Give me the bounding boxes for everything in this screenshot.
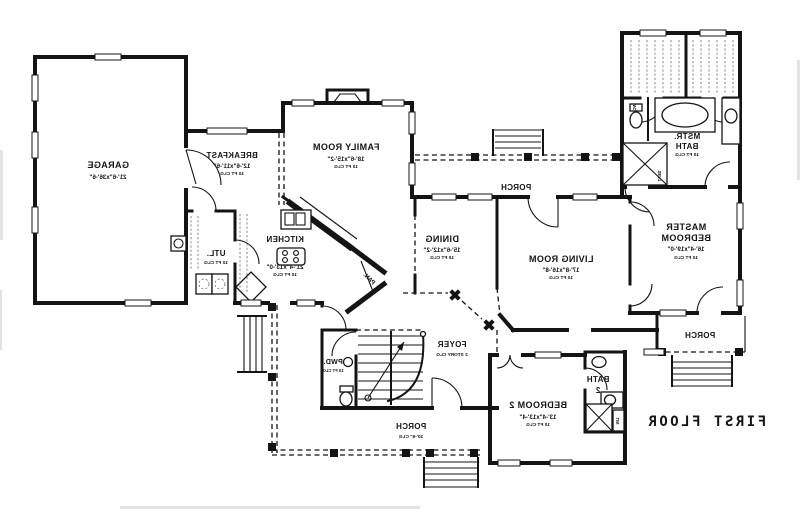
svg-text:LIVING ROOM: LIVING ROOM [529, 254, 594, 264]
tub-icon [655, 98, 715, 132]
svg-text:FIRST FLOOR: FIRST FLOOR [646, 414, 766, 430]
floor-plan: GARAGE 21'-6"x36'-6" BREAKFAST 12'-6"x11… [0, 0, 800, 509]
svg-text:15'-6"x12'-2": 15'-6"x12'-2" [423, 247, 460, 254]
svg-text:10 FT CLG: 10 FT CLG [526, 422, 550, 428]
kitchen-island [236, 272, 266, 302]
svg-text:BEDROOM 2: BEDROOM 2 [509, 400, 567, 410]
garage-label: GARAGE 21'-6"x36'-6" [87, 160, 129, 181]
svg-text:13'-4"x13'-4": 13'-4"x13'-4" [519, 414, 556, 421]
svg-text:2: 2 [595, 386, 600, 395]
svg-text:MASTER: MASTER [666, 222, 707, 232]
svg-text:21'-4"x13'-0": 21'-4"x13'-0" [266, 264, 303, 271]
svg-text:BEDROOM: BEDROOM [661, 233, 711, 243]
svg-text:10 FT CLG: 10 FT CLG [549, 275, 573, 281]
svg-text:PWD.: PWD. [323, 359, 342, 366]
svg-text:BATH: BATH [676, 142, 699, 151]
floor-plan-drawing: GARAGE 21'-6"x36'-6" BREAKFAST 12'-6"x11… [0, 0, 800, 509]
svg-text:BREAKFAST: BREAKFAST [206, 151, 258, 160]
svg-text:DINING: DINING [425, 234, 459, 244]
svg-text:BATH: BATH [587, 375, 610, 384]
svg-text:PORCH: PORCH [501, 183, 531, 192]
svg-text:18'-6"x15'-2": 18'-6"x15'-2" [327, 156, 364, 163]
dining-walls [403, 197, 497, 333]
powder-label: PWD. 10 FT CLG [323, 359, 344, 373]
stairs [356, 330, 426, 404]
svg-text:MSTR.: MSTR. [674, 132, 700, 141]
utility-label: UTL. 10 FT CLG [204, 249, 228, 266]
svg-text:10 FT CLG: 10 FT CLG [204, 260, 228, 266]
family-room-label: FAMILY ROOM 18'-6"x15'-2" 10 FT CLG [313, 142, 380, 170]
water-heater-icon [171, 236, 186, 251]
svg-text:PORCH: PORCH [685, 331, 715, 340]
svg-text:PAN.: PAN. [361, 272, 375, 286]
svg-text:10 FT CLG: 10 FT CLG [674, 255, 698, 261]
seat-label: SEAT [657, 171, 662, 182]
svg-text:10 FT CLG: 10 FT CLG [675, 152, 699, 158]
front-steps [424, 458, 478, 487]
master-bath-walls [622, 30, 740, 313]
rear-steps [493, 130, 543, 155]
porch-top-walls [412, 130, 630, 227]
pwd-toilet-icon [340, 386, 353, 406]
bedroom2-label: BEDROOM 2 13'-4"x13'-4" 10 FT CLG [509, 400, 567, 428]
porch-right-label: PORCH [685, 331, 715, 340]
breakfast-label: BREAKFAST 12'-6"x11'-6" 10 FT CLG [206, 151, 258, 177]
master-bath-label: MSTR. BATH 10 FT CLG [674, 132, 700, 158]
porch-right-walls [644, 315, 745, 386]
svg-text:WC: WC [632, 104, 637, 111]
porch-top-label: PORCH [501, 183, 531, 192]
svg-text:10 FT CLG: 10 FT CLG [430, 255, 454, 261]
washer-dryer-icon [196, 274, 228, 294]
pantry-label: PAN. [361, 272, 375, 286]
bath2-toilet-icon [592, 357, 606, 368]
svg-text:GARAGE: GARAGE [87, 160, 129, 170]
svg-text:21'-6"x36'-6": 21'-6"x36'-6" [89, 174, 126, 181]
svg-text:10 FT CLG: 10 FT CLG [273, 272, 297, 278]
svg-text:FAMILY ROOM: FAMILY ROOM [313, 142, 380, 152]
svg-text:17'-8"x16'-8": 17'-8"x16'-8" [542, 267, 579, 274]
svg-text:SEAT: SEAT [657, 171, 662, 182]
svg-text:PORCH: PORCH [396, 422, 426, 431]
side-steps [238, 316, 266, 372]
svg-text:KITCHEN: KITCHEN [266, 235, 304, 244]
dining-label: DINING 15'-6"x12'-2" 10 FT CLG [423, 234, 460, 261]
right-steps [672, 356, 732, 386]
svg-text:UTL.: UTL. [207, 249, 226, 258]
foyer-label: FOYER 2 STORY CLG [436, 340, 468, 358]
svg-text:10 FT CLG: 10 FT CLG [323, 368, 344, 373]
sink-icon [722, 98, 740, 144]
pwd-sink-icon [344, 358, 353, 367]
svg-text:FOYER: FOYER [437, 340, 466, 349]
svg-text:10 FT CLG: 10 FT CLG [220, 171, 244, 177]
living-room-label: LIVING ROOM 17'-8"x16'-8" 10 FT CLG [529, 254, 594, 281]
svg-text:12'-6"x11'-6": 12'-6"x11'-6" [214, 163, 251, 170]
svg-text:10 FT CLG: 10 FT CLG [334, 164, 358, 170]
bath2-shower-icon [586, 404, 612, 431]
wc-label: WC [632, 104, 637, 111]
svg-text:2 STORY CLG: 2 STORY CLG [436, 352, 468, 358]
linen-label: LIN [615, 418, 620, 425]
sheet-title: FIRST FLOOR [646, 414, 766, 430]
svg-text:10'-6" CLG: 10'-6" CLG [398, 434, 423, 440]
svg-text:LIN: LIN [615, 418, 620, 425]
porch-front-label: PORCH 10'-6" CLG [396, 422, 426, 440]
svg-text:16'-4"x19'-0": 16'-4"x19'-0" [667, 246, 704, 253]
master-bedroom-label: MASTER BEDROOM 16'-4"x19'-0" 10 FT CLG [661, 222, 711, 261]
range-icon [277, 248, 305, 265]
